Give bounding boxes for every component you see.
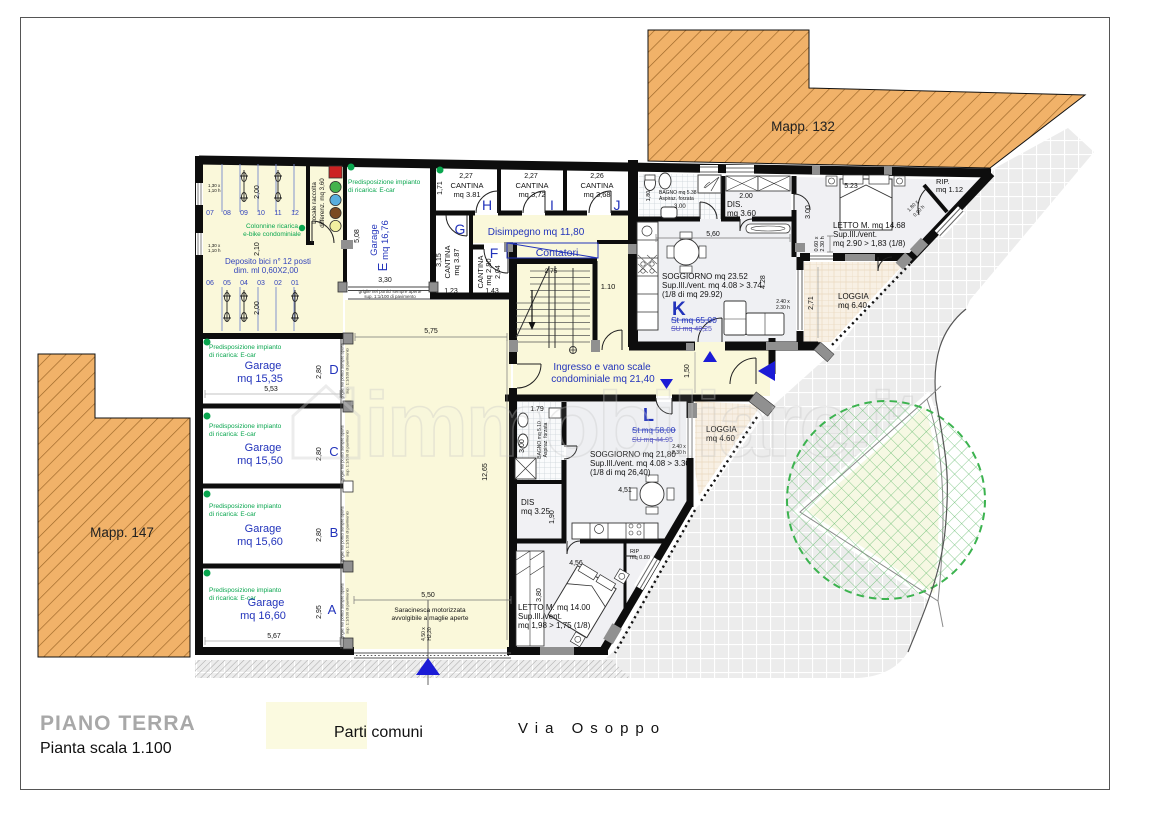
- svg-text:e-bike condominiale: e-bike condominiale: [243, 231, 301, 238]
- svg-text:Garage: Garage: [245, 360, 282, 372]
- svg-text:Colonnine ricarica: Colonnine ricarica: [246, 223, 298, 230]
- svg-text:Predisposizione impianto: Predisposizione impianto: [209, 344, 282, 351]
- svg-text:CANTINA: CANTINA: [581, 181, 614, 190]
- svg-text:2.00: 2.00: [739, 193, 753, 200]
- svg-text:02: 02: [274, 280, 282, 287]
- svg-text:Garage: Garage: [245, 442, 282, 454]
- svg-text:Aspiraz. forzata: Aspiraz. forzata: [659, 196, 694, 202]
- svg-text:I: I: [550, 197, 554, 213]
- svg-text:Saracinesca motorizzata: Saracinesca motorizzata: [394, 607, 466, 614]
- svg-text:3.00: 3.00: [805, 205, 812, 219]
- svg-text:CANTINA: CANTINA: [451, 181, 484, 190]
- svg-text:3,15: 3,15: [436, 253, 443, 267]
- svg-text:D: D: [329, 362, 338, 377]
- svg-text:mq 2.90 > 1,83 (1/8): mq 2.90 > 1,83 (1/8): [833, 239, 906, 248]
- svg-text:sup. 1:1/100 di pavimento: sup. 1:1/100 di pavimento: [364, 294, 416, 299]
- svg-text:01: 01: [291, 280, 299, 287]
- svg-text:Pianta scala 1.100: Pianta scala 1.100: [40, 740, 172, 757]
- svg-text:Disimpegno mq 11,80: Disimpegno mq 11,80: [488, 227, 585, 238]
- svg-text:2.30 h: 2.30 h: [820, 236, 826, 251]
- svg-text:Mapp. 147: Mapp. 147: [90, 525, 154, 540]
- svg-text:di ricarica: E-car: di ricarica: E-car: [209, 431, 257, 438]
- svg-text:5,08: 5,08: [354, 229, 361, 243]
- svg-text:mq 15,35: mq 15,35: [237, 373, 283, 385]
- svg-text:03: 03: [257, 280, 265, 287]
- svg-text:mq 1.12: mq 1.12: [936, 185, 963, 194]
- svg-text:2,26: 2,26: [590, 173, 604, 180]
- svg-text:2,80: 2,80: [316, 365, 323, 379]
- svg-text:1,71: 1,71: [437, 181, 444, 195]
- svg-text:2,27: 2,27: [459, 173, 473, 180]
- svg-text:2,00: 2,00: [254, 185, 261, 199]
- svg-text:05: 05: [223, 280, 231, 287]
- svg-text:1,43: 1,43: [485, 288, 499, 295]
- svg-text:3,80: 3,80: [536, 588, 543, 602]
- svg-text:04: 04: [240, 280, 248, 287]
- svg-text:dim. ml 0,60X2,00: dim. ml 0,60X2,00: [234, 266, 299, 275]
- svg-text:1,10 h: 1,10 h: [208, 188, 221, 193]
- svg-text:5,53: 5,53: [264, 386, 278, 393]
- svg-text:2,04: 2,04: [495, 265, 502, 279]
- svg-text:Predisposizione impianto: Predisposizione impianto: [209, 587, 282, 594]
- svg-text:SU mq 48,25: SU mq 48,25: [671, 326, 712, 333]
- svg-text:1,80: 1,80: [646, 191, 652, 202]
- svg-text:CANTINA: CANTINA: [516, 181, 549, 190]
- svg-text:11: 11: [274, 210, 281, 217]
- svg-text:1.10: 1.10: [601, 282, 616, 291]
- svg-text:G: G: [455, 221, 466, 237]
- svg-text:5,75: 5,75: [424, 328, 438, 335]
- svg-text:Ingresso e vano scale: Ingresso e vano scale: [553, 362, 651, 373]
- svg-text:2,95: 2,95: [316, 605, 323, 619]
- svg-text:4,51: 4,51: [618, 487, 632, 494]
- svg-text:mq 1,98 > 1,75 (1/8): mq 1,98 > 1,75 (1/8): [518, 621, 591, 630]
- svg-text:4,56: 4,56: [569, 560, 583, 567]
- svg-text:CANTINA: CANTINA: [443, 246, 452, 279]
- svg-text:Sup.Ill./vent.: Sup.Ill./vent.: [833, 230, 877, 239]
- svg-text:LETTO M. mq 14.00: LETTO M. mq 14.00: [518, 603, 591, 612]
- svg-text:Garage: Garage: [369, 224, 380, 256]
- svg-text:(1/8 di mq 29.92): (1/8 di mq 29.92): [662, 290, 723, 299]
- svg-text:mq 3.25: mq 3.25: [521, 507, 550, 516]
- svg-text:di ricarica: E-car: di ricarica: E-car: [348, 187, 396, 194]
- svg-text:mq 3.60: mq 3.60: [727, 209, 756, 218]
- svg-text:2,75: 2,75: [545, 268, 558, 275]
- svg-text:H2,20: H2,20: [427, 627, 433, 641]
- svg-text:di ricarica: E-car: di ricarica: E-car: [209, 511, 257, 518]
- svg-text:mq 15,60: mq 15,60: [237, 536, 283, 548]
- svg-text:5,50: 5,50: [421, 592, 435, 599]
- svg-text:2,10: 2,10: [254, 242, 261, 256]
- svg-text:Deposito bici n° 12 posti: Deposito bici n° 12 posti: [225, 257, 311, 266]
- svg-text:06: 06: [206, 280, 214, 287]
- svg-text:avvolgibile a maglie aperte: avvolgibile a maglie aperte: [392, 615, 469, 622]
- svg-text:SOGGIORNO mq 23.52: SOGGIORNO mq 23.52: [662, 272, 748, 281]
- svg-text:mq 3.81: mq 3.81: [453, 190, 480, 199]
- svg-text:A: A: [328, 602, 337, 617]
- svg-text:1,23: 1,23: [444, 288, 458, 295]
- svg-text:H: H: [482, 197, 492, 213]
- svg-text:Sup.Ill./vent.: Sup.Ill./vent.: [518, 612, 562, 621]
- svg-text:10: 10: [257, 210, 265, 217]
- svg-text:5,60: 5,60: [706, 231, 720, 238]
- svg-text:mq 16,76: mq 16,76: [380, 220, 391, 260]
- svg-text:mq 3,72: mq 3,72: [518, 190, 545, 199]
- svg-text:12: 12: [291, 210, 299, 217]
- svg-text:2,71: 2,71: [808, 296, 815, 310]
- svg-text:mq 16,60: mq 16,60: [240, 610, 286, 622]
- svg-text:Predisposizione impianto: Predisposizione impianto: [209, 423, 282, 430]
- svg-text:sup. 1:1/100 di pavimento: sup. 1:1/100 di pavimento: [345, 510, 350, 557]
- svg-text:2,27: 2,27: [524, 173, 538, 180]
- svg-text:di ricarica: E-car: di ricarica: E-car: [209, 352, 257, 359]
- svg-text:DIS: DIS: [521, 498, 534, 507]
- svg-text:mq 3.87: mq 3.87: [452, 248, 461, 275]
- svg-text:J: J: [614, 197, 621, 213]
- svg-text:Contatori: Contatori: [536, 247, 579, 259]
- svg-text:2.30 h: 2.30 h: [776, 305, 790, 311]
- svg-text:mq 6.40: mq 6.40: [838, 301, 867, 310]
- svg-text:sup. 1:1/100 di pavimento: sup. 1:1/100 di pavimento: [345, 429, 350, 476]
- svg-text:09: 09: [240, 210, 248, 217]
- svg-text:mq 15,50: mq 15,50: [237, 455, 283, 467]
- svg-text:4.28: 4.28: [760, 275, 767, 289]
- svg-text:LETTO M. mq 14.68: LETTO M. mq 14.68: [833, 221, 906, 230]
- svg-text:2,00: 2,00: [254, 301, 261, 315]
- svg-text:3,30: 3,30: [378, 277, 392, 284]
- svg-text:2,80: 2,80: [316, 528, 323, 542]
- svg-text:mq 0.80: mq 0.80: [630, 555, 650, 561]
- svg-text:PIANO TERRA: PIANO TERRA: [40, 712, 196, 735]
- svg-text:B: B: [330, 525, 339, 540]
- svg-text:sup. 1:1/100 di pavimento: sup. 1:1/100 di pavimento: [345, 587, 350, 634]
- svg-text:5,67: 5,67: [267, 633, 281, 640]
- svg-text:differenz. mq 3,60: differenz. mq 3,60: [319, 178, 326, 228]
- svg-text:mq 2,80: mq 2,80: [484, 258, 493, 285]
- svg-text:mq 3,68: mq 3,68: [583, 190, 610, 199]
- svg-text:Parti comuni: Parti comuni: [334, 724, 423, 741]
- svg-text:DIS.: DIS.: [727, 200, 743, 209]
- svg-text:Sup.Ill./vent. mq 4.08 > 3.74: Sup.Ill./vent. mq 4.08 > 3.74: [662, 281, 762, 290]
- svg-text:5.23: 5.23: [844, 183, 858, 190]
- svg-text:Garage: Garage: [245, 523, 282, 535]
- svg-text:Locale raccolta: Locale raccolta: [311, 182, 318, 224]
- svg-text:LOGGIA: LOGGIA: [838, 292, 869, 301]
- svg-text:Via Osoppo: Via Osoppo: [518, 720, 666, 737]
- svg-text:Predisposizione impianto: Predisposizione impianto: [209, 503, 282, 510]
- svg-text:1,90: 1,90: [549, 510, 556, 524]
- svg-text:Mapp. 132: Mapp. 132: [771, 119, 835, 134]
- svg-text:08: 08: [223, 210, 231, 217]
- svg-text:Garage: Garage: [248, 597, 285, 609]
- svg-text:Predisposizione impianto: Predisposizione impianto: [348, 179, 421, 186]
- svg-text:1,10 h: 1,10 h: [208, 248, 221, 253]
- svg-text:07: 07: [206, 210, 214, 217]
- svg-text:E: E: [375, 262, 390, 271]
- svg-text:3.00: 3.00: [674, 204, 686, 210]
